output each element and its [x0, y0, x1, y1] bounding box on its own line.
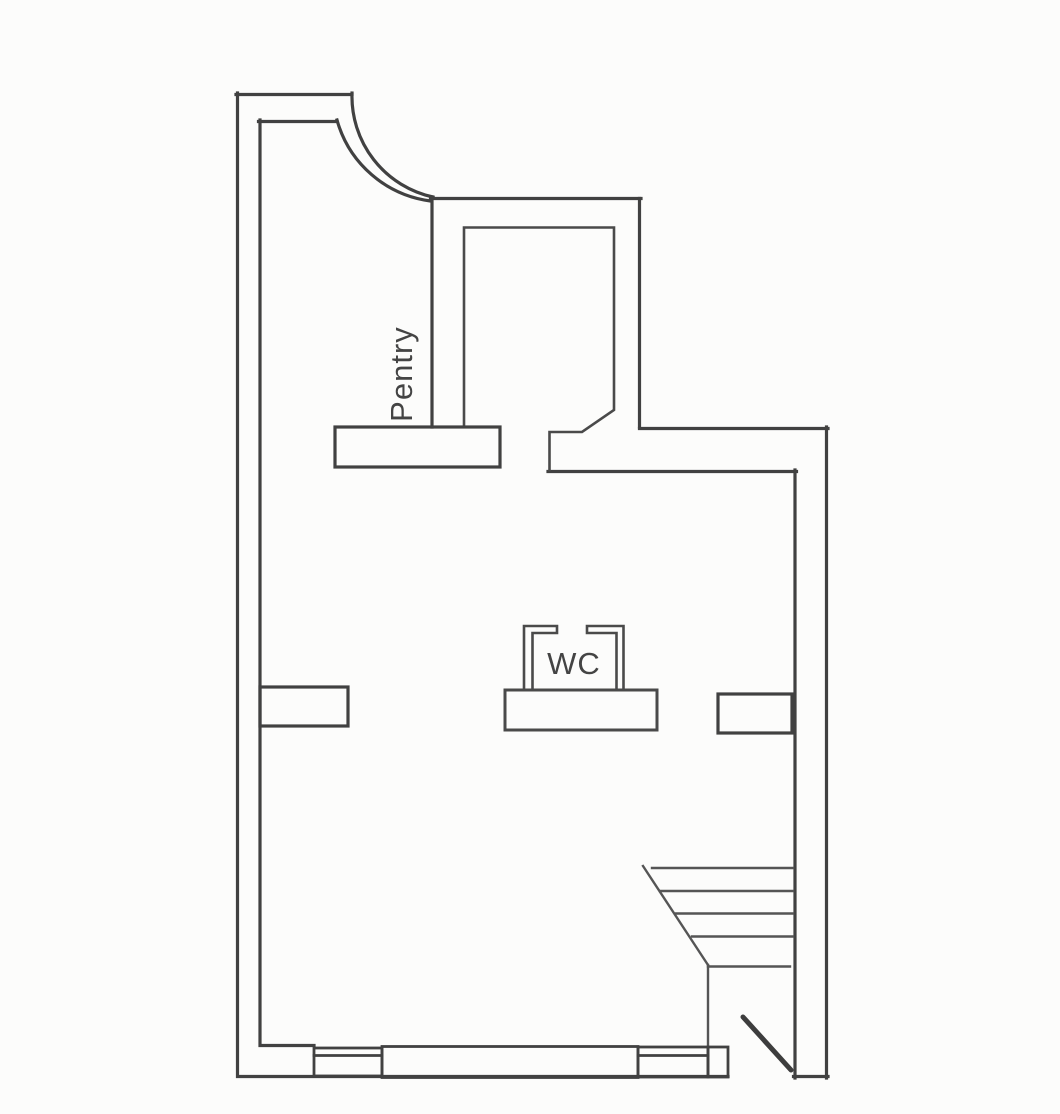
floor-plan-page: WC Pentry	[0, 0, 1060, 1114]
wc-label: WC	[547, 646, 601, 681]
pantry-label: Pentry	[384, 326, 419, 422]
paper-background	[0, 0, 1060, 1114]
floor-plan-drawing: WC Pentry	[0, 0, 1060, 1114]
